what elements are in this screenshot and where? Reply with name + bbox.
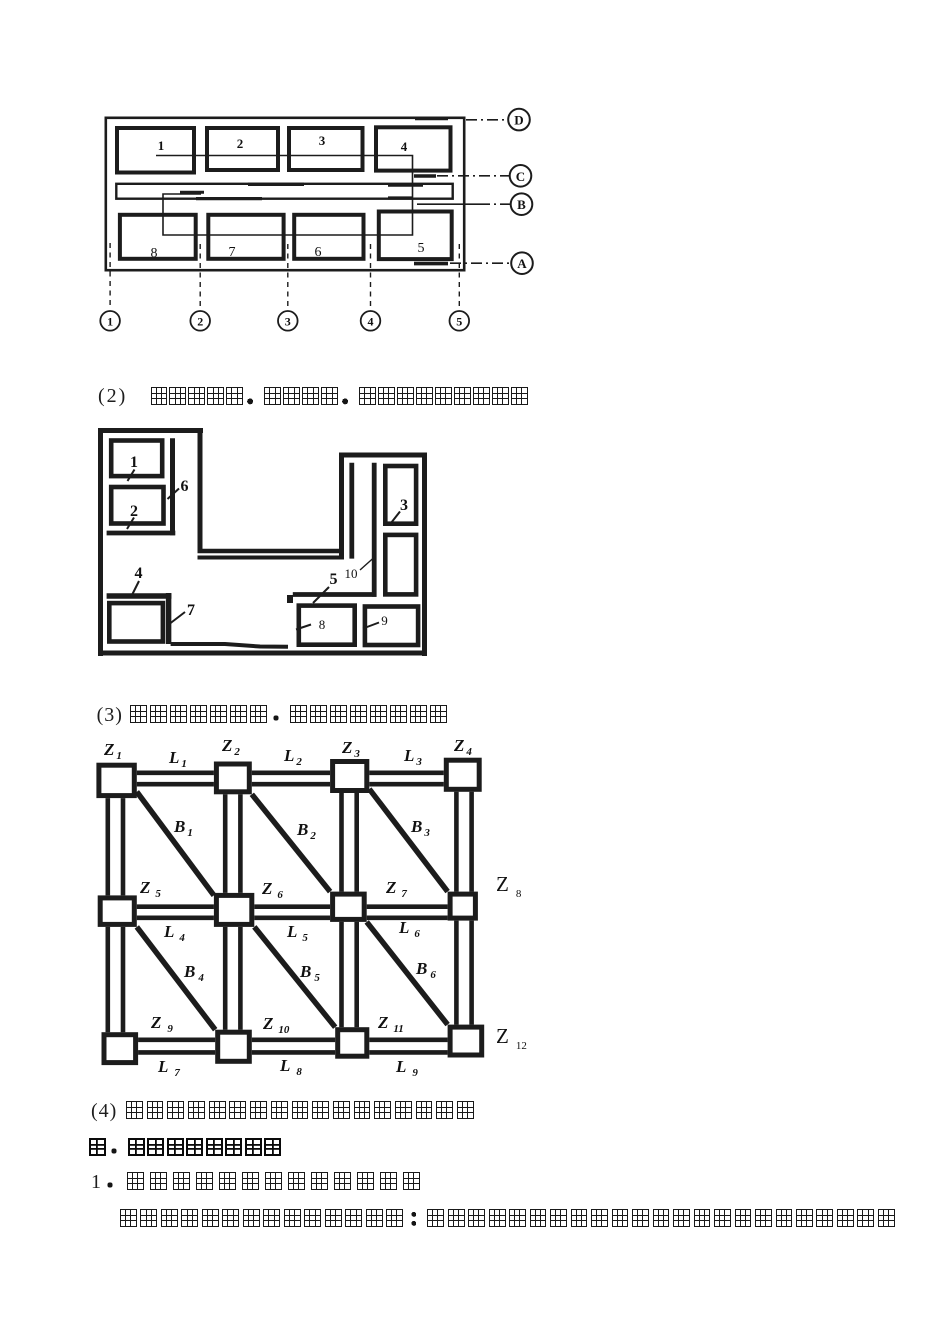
svg-text:8: 8 (151, 246, 158, 261)
svg-text:Z3: Z3 (341, 738, 360, 760)
svg-text:L4: L4 (163, 922, 185, 944)
svg-text:7: 7 (229, 245, 236, 260)
svg-text:D: D (514, 113, 523, 128)
svg-text:Z4: Z4 (453, 736, 472, 758)
svg-text:B6: B6 (415, 959, 436, 981)
svg-text:A: A (517, 256, 527, 271)
svg-text:L7: L7 (157, 1057, 180, 1079)
svg-text:Z8: Z8 (496, 872, 522, 900)
svg-text:Z12: Z12 (496, 1024, 527, 1052)
svg-text:B: B (517, 197, 526, 212)
svg-text:2: 2 (197, 315, 203, 329)
svg-text:L2: L2 (283, 746, 302, 768)
svg-text:4: 4 (135, 565, 143, 582)
svg-text:B2: B2 (296, 820, 316, 842)
svg-text:9: 9 (381, 613, 388, 628)
svg-text:L9: L9 (395, 1057, 418, 1079)
svg-text:B3: B3 (410, 817, 430, 839)
svg-text:3: 3 (285, 315, 291, 329)
svg-text:Z11: Z11 (377, 1013, 404, 1035)
svg-text:4: 4 (368, 315, 374, 329)
svg-text:1: 1 (107, 315, 113, 329)
svg-text:5: 5 (456, 315, 462, 329)
svg-text:3: 3 (400, 497, 408, 514)
svg-text:1: 1 (158, 138, 165, 153)
svg-text:L3: L3 (403, 746, 422, 768)
svg-text:5: 5 (330, 571, 338, 588)
svg-text:Z1: Z1 (103, 740, 122, 762)
svg-text:Z2: Z2 (221, 736, 240, 758)
svg-text:B5: B5 (299, 962, 320, 984)
svg-text:Z6: Z6 (261, 879, 283, 901)
svg-text:7: 7 (187, 602, 195, 619)
svg-text:4: 4 (401, 139, 408, 154)
svg-text:10: 10 (345, 566, 358, 581)
svg-text:Z10: Z10 (262, 1014, 290, 1036)
svg-text:Z7: Z7 (385, 878, 407, 900)
svg-text:6: 6 (315, 245, 322, 260)
svg-text:C: C (516, 169, 525, 184)
svg-text:5: 5 (418, 241, 425, 256)
svg-text:2: 2 (130, 503, 138, 520)
svg-text:B1: B1 (173, 817, 193, 839)
svg-text:L1: L1 (168, 748, 187, 770)
svg-text:1: 1 (130, 454, 138, 471)
svg-text:3: 3 (319, 133, 326, 148)
svg-text:L8: L8 (279, 1056, 302, 1078)
svg-text:B4: B4 (183, 962, 204, 984)
svg-text:Z5: Z5 (139, 878, 161, 900)
svg-text:Z9: Z9 (150, 1013, 173, 1035)
svg-text:2: 2 (237, 136, 244, 151)
svg-text:L5: L5 (286, 922, 308, 944)
svg-text:6: 6 (181, 478, 189, 495)
svg-text:8: 8 (319, 617, 326, 632)
svg-text:L6: L6 (398, 918, 420, 940)
